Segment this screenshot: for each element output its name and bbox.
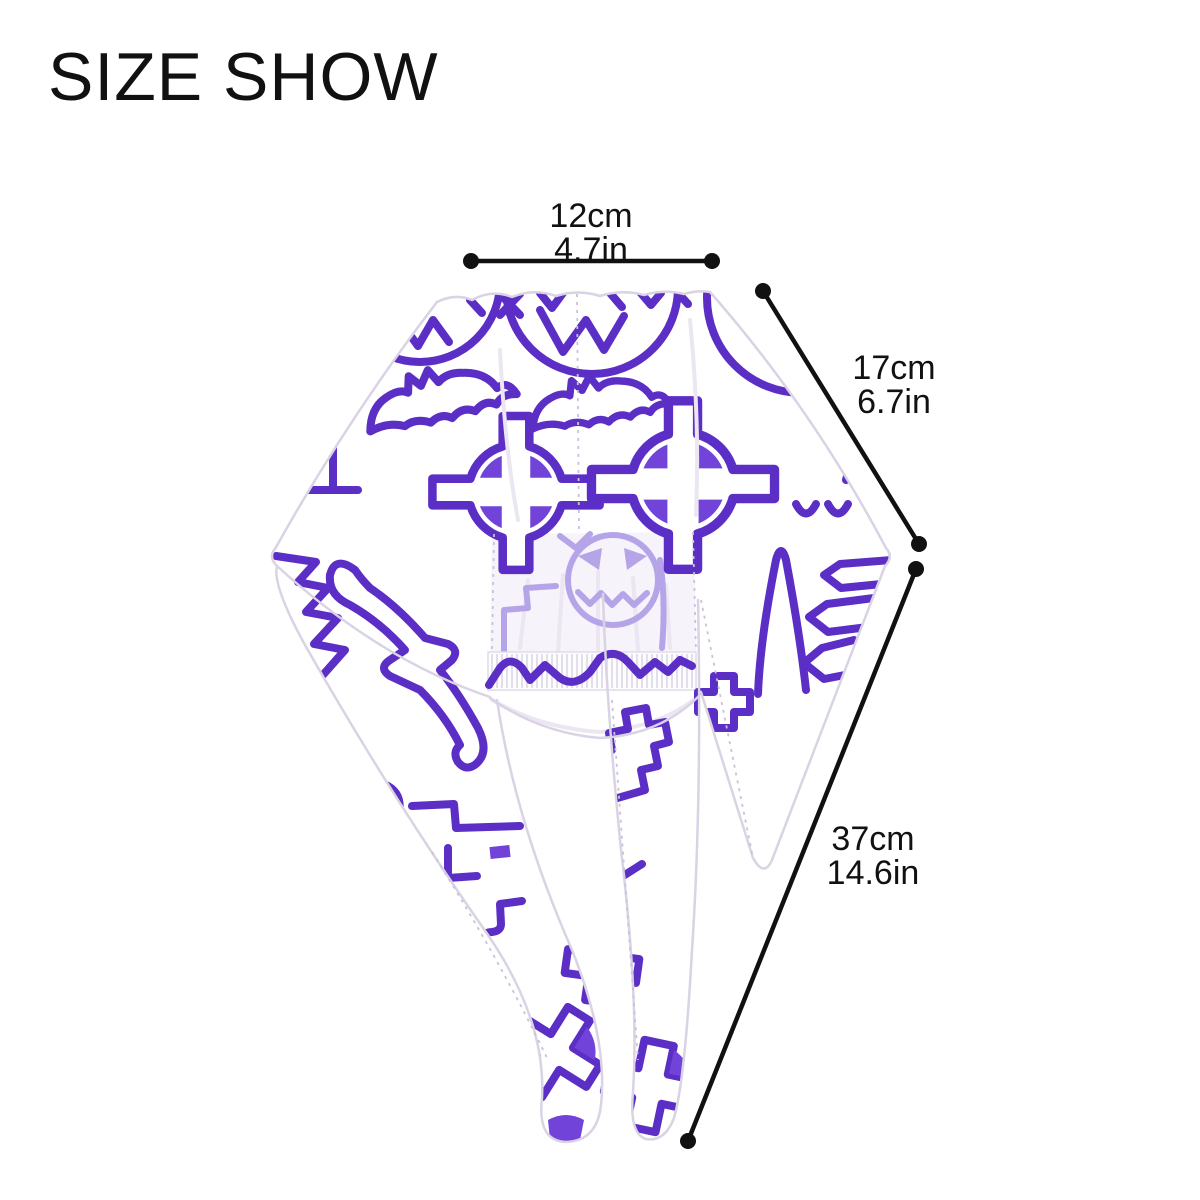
measurement-label-top-width: 12cm 4.7in	[441, 199, 741, 267]
measurement-cm: 17cm	[814, 351, 974, 385]
hook-motif	[352, 778, 399, 832]
measurement-inch: 6.7in	[814, 385, 974, 419]
product-illustration	[0, 0, 1200, 1200]
elastic-band	[488, 652, 696, 690]
measurement-cm: 37cm	[793, 822, 953, 856]
measurement-label-tail-length: 37cm 14.6in	[793, 822, 953, 890]
measurement-inch: 4.7in	[441, 233, 741, 267]
size-show-image: SIZE SHOW 12cm 4.7in 17cm 6.7in 37cm 14.…	[0, 0, 1200, 1200]
measurement-inch: 14.6in	[793, 856, 953, 890]
measurement-label-side-depth: 17cm 6.7in	[814, 351, 974, 419]
page-title: SIZE SHOW	[48, 40, 439, 115]
measurement-cm: 12cm	[441, 199, 741, 233]
faded-edge-line	[660, 560, 664, 648]
